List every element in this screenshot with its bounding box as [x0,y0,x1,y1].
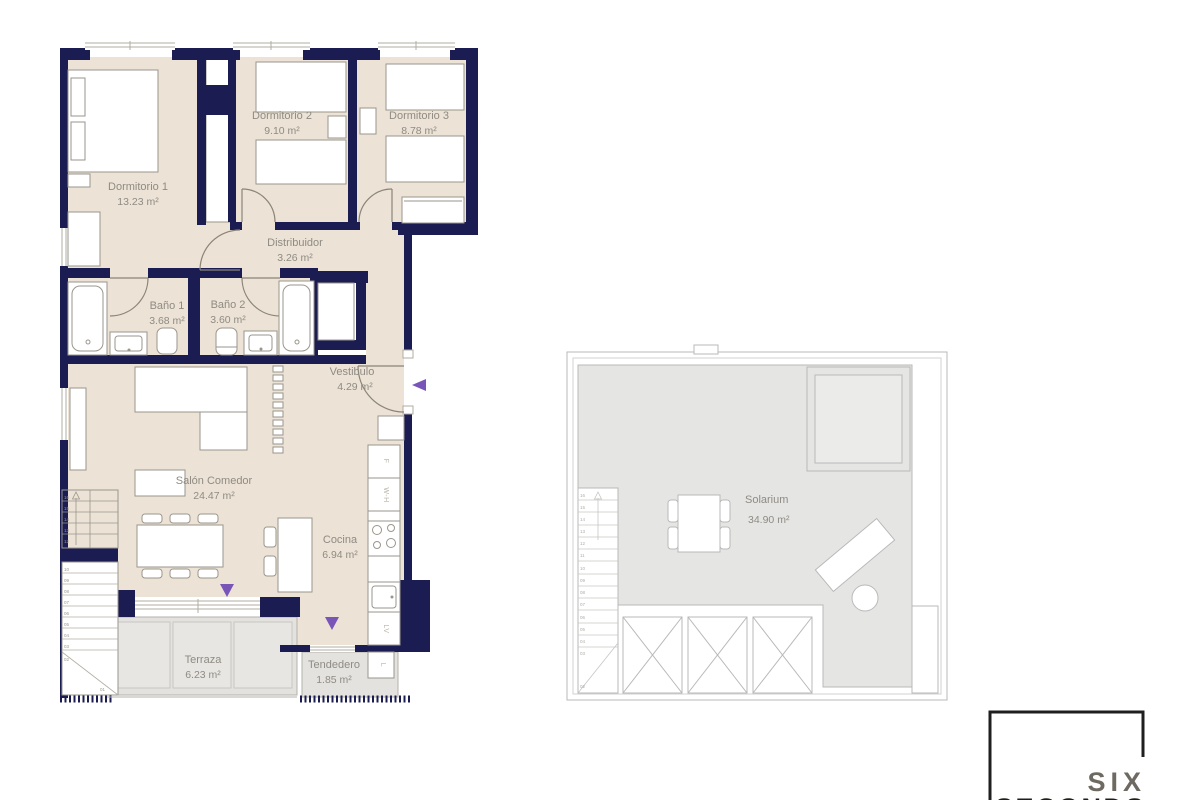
water-heater-label: W-H [382,487,389,502]
room-area-dorm3: 8.78 m² [401,125,437,137]
room-area-salon: 24.47 m² [193,490,235,502]
sideboard-icon [70,388,86,470]
svg-text:12: 12 [64,539,70,544]
svg-text:02: 02 [64,657,70,662]
room-label-solarium: Solarium [745,494,788,506]
bathtub-icon-bano1 [68,282,107,355]
room-area-tendedero: 1.85 m² [316,674,352,686]
room-label-cocina: Cocina [323,534,358,546]
room-label-salon: Salón Comedor [176,475,253,487]
sink-icon-bano2 [244,331,277,355]
pergola-squares [623,617,812,693]
svg-text:15: 15 [580,505,586,510]
logo-text-seconds: SECONDS [995,793,1146,800]
room-area-terraza: 6.23 m² [185,669,221,681]
planter-box [912,606,938,693]
kitchen-sink-icon [372,586,396,608]
bathtub-icon-bano2 [279,281,314,355]
sink-icon-bano1 [110,332,147,355]
svg-text:14: 14 [64,517,70,522]
svg-text:13: 13 [580,529,586,534]
room-label-dorm2: Dormitorio 2 [252,110,312,122]
svg-text:02: 02 [580,684,586,689]
svg-text:10: 10 [64,567,70,572]
room-label-bano1: Baño 1 [150,300,185,312]
room-area-dorm1: 13.23 m² [117,196,159,208]
closet-column [206,57,230,222]
entrance-arrow-icon [412,379,426,391]
svg-text:07: 07 [580,602,586,607]
svg-text:06: 06 [580,615,586,620]
room-area-solarium: 34.90 m² [748,514,790,526]
room-area-cocina: 6.94 m² [322,549,358,561]
floorplan-drawing: 16 15 14 13 12 10 09 08 07 06 05 04 03 0… [0,0,1200,800]
svg-text:08: 08 [580,590,586,595]
svg-text:05: 05 [64,622,70,627]
svg-text:12: 12 [580,541,586,546]
svg-text:09: 09 [580,578,586,583]
svg-text:15: 15 [64,506,70,511]
room-area-distribuidor: 3.26 m² [277,252,313,264]
wardrobe-icon-dorm1 [68,212,100,266]
svg-text:16: 16 [580,493,586,498]
wardrobe-icon-hall [318,283,354,340]
svg-text:04: 04 [64,633,70,638]
room-label-terraza: Terraza [185,654,223,666]
svg-text:08: 08 [64,589,70,594]
closet-icon-dorm3 [402,197,464,223]
room-area-dorm2: 9.10 m² [264,125,300,137]
svg-text:05: 05 [580,627,586,632]
room-label-distribuidor: Distribuidor [267,237,323,249]
svg-text:06: 06 [64,611,70,616]
room-label-dorm3: Dormitorio 3 [389,110,449,122]
room-area-bano2: 3.60 m² [210,314,246,326]
room-label-bano2: Baño 2 [211,299,246,311]
logo: SIX SECONDS [990,712,1146,800]
room-label-vestibulo: Vestibulo [330,366,375,378]
svg-text:13: 13 [64,528,70,533]
svg-text:03: 03 [580,651,586,656]
solarium-plan: 16 15 14 13 12 11 10 09 08 07 06 05 04 0… [567,345,947,700]
room-area-vestibulo: 4.29 m² [337,381,373,393]
floorplan-page: 16 15 14 13 12 10 09 08 07 06 05 04 03 0… [0,0,1200,800]
svg-text:04: 04 [580,639,586,644]
bed-icon-dorm1 [68,70,158,172]
svg-text:16: 16 [64,495,70,500]
svg-text:01: 01 [100,687,106,692]
svg-text:09: 09 [64,578,70,583]
nightstand-icon [68,174,90,187]
kitchen-appliance-column [368,416,404,645]
svg-text:11: 11 [580,553,585,558]
svg-text:10: 10 [580,566,586,571]
skylight-squares [807,367,910,471]
washer-label: L [379,663,386,667]
room-label-tendedero: Tendedero [308,659,360,671]
solarium-top-tab [694,345,718,354]
toilet-icon-bano1 [157,328,177,354]
dishwasher-label: LV [382,624,389,633]
svg-text:03: 03 [64,644,70,649]
room-area-bano1: 3.68 m² [149,315,185,327]
svg-text:07: 07 [64,600,70,605]
room-label-dorm1: Dormitorio 1 [108,181,168,193]
svg-text:14: 14 [580,517,586,522]
apartment-plan: 16 15 14 13 12 10 09 08 07 06 05 04 03 0… [60,41,478,699]
solarium-stairs: 16 15 14 13 12 11 10 09 08 07 06 05 04 0… [578,488,618,693]
fridge-label: F [382,459,389,464]
toilet-icon-bano2 [216,328,237,355]
